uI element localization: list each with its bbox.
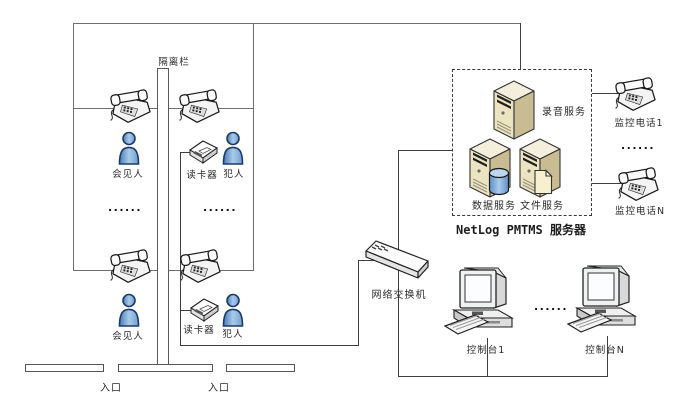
visitor-label-row2: 会见人 (112, 328, 144, 342)
cable-switch-to-serverbox (398, 150, 452, 151)
file-service-label: 文件服务 (520, 197, 564, 212)
entrance-left-label: 入口 (100, 379, 122, 394)
visitor-person-icon (116, 131, 142, 169)
network-switch-label: 网络交换机 (372, 286, 427, 301)
entrance-wall-middle (118, 364, 213, 372)
visitor-label-row1: 会见人 (112, 166, 144, 180)
telephone-icon (108, 248, 154, 292)
file-icon (533, 169, 553, 199)
telephone-icon (178, 248, 224, 292)
console-workstation-icon (444, 266, 522, 342)
console-workstation-icon (567, 264, 645, 340)
diagram-canvas: 隔离栏 入口 入口 会见人 读卡器 犯人 ...... ...... 会见人 读… (0, 0, 675, 402)
card-reader-label-row2: 读卡器 (183, 322, 215, 336)
database-icon (488, 167, 510, 201)
cable-wall-to-serverbox (520, 23, 521, 69)
isolation-fence-label: 隔离栏 (158, 54, 190, 68)
console1-label: 控制台1 (467, 342, 506, 356)
card-reader-label-row1: 读卡器 (186, 167, 218, 181)
recording-server-icon (486, 79, 540, 145)
wall-left (73, 23, 74, 270)
network-switch-icon (362, 237, 432, 285)
prisoner-person-icon (220, 131, 246, 169)
entrance-wall-left (25, 364, 104, 372)
prisoner-label-row2: 犯人 (222, 326, 243, 340)
monitor-phone1-label: 监控电话1 (614, 115, 663, 129)
server-box-caption: NetLog PMTMS 服务器 (456, 221, 586, 238)
recording-service-label: 录音服务 (542, 103, 586, 118)
monitor-telephone-icon (613, 76, 659, 120)
ellipsis-visitor-side: ...... (108, 201, 142, 214)
wall-top (73, 23, 520, 24)
monitor-phoneN-label: 监控电话N (615, 203, 665, 217)
data-service-label: 数据服务 (472, 197, 516, 212)
card-reader-icon (187, 137, 219, 169)
telephone-icon (177, 88, 223, 132)
consoleN-label: 控制台N (585, 342, 625, 356)
prisoner-label-row1: 犯人 (223, 166, 244, 180)
cable-console-bus (398, 376, 608, 377)
wall-right (253, 23, 254, 271)
ellipsis-monitor-phones: ...... (621, 139, 655, 152)
cable-riser-to-switch (358, 260, 359, 346)
ellipsis-prisoner-side: ...... (203, 201, 237, 214)
ellipsis-consoles: ...... (534, 300, 568, 313)
entrance-wall-right (226, 364, 295, 372)
entrance-right-label: 入口 (208, 379, 230, 394)
visitor-person-icon (116, 293, 142, 331)
isolation-fence (157, 68, 169, 365)
cable-bottom-run (180, 345, 358, 346)
telephone-icon (108, 88, 154, 132)
